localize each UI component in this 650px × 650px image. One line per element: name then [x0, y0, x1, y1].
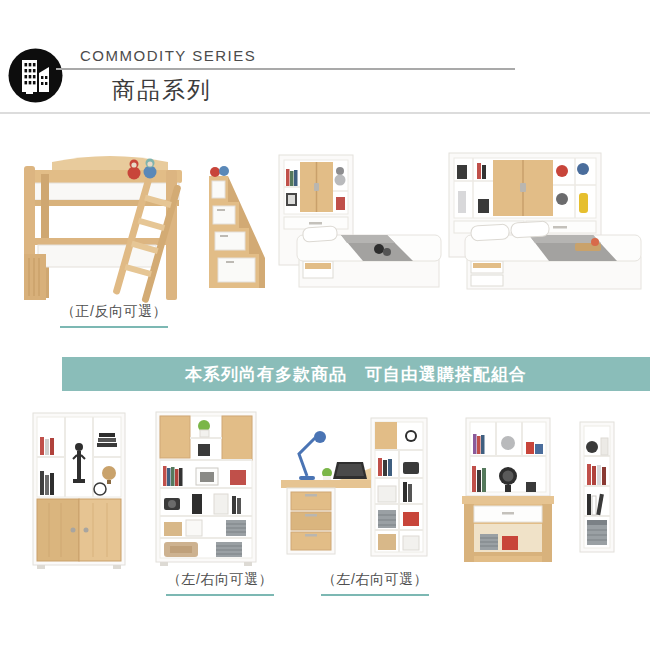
- promo-banner-text: 本系列尚有多款商品 可自由選購搭配組合: [185, 363, 527, 386]
- series-title-zh: 商品系列: [112, 75, 212, 106]
- buildings-icon: [8, 48, 63, 103]
- corner-desk-image: [279, 416, 434, 566]
- narrow-bookcase-image: [577, 420, 617, 558]
- open-bookcase-image: [152, 410, 260, 568]
- promo-banner: 本系列尚有多款商品 可自由選購搭配組合: [62, 357, 650, 391]
- commodity-series-promo-page: COMMODITY SERIES 商品系列: [0, 0, 650, 650]
- note-open-bookcase-orientation: （左/右向可選）: [166, 571, 274, 596]
- note-corner-desk-orientation: （左/右向可選）: [321, 571, 429, 596]
- desk-with-hutch-image: [460, 416, 556, 568]
- loft-bed-image: [18, 146, 203, 306]
- stair-cabinet-image: [206, 162, 268, 292]
- double-bed-image: [445, 151, 645, 303]
- single-bed-image: [275, 153, 445, 303]
- series-title-en: COMMODITY SERIES: [80, 47, 256, 64]
- note-loft-bed-orientation: （正/反向可選）: [60, 303, 168, 328]
- header-separator-line: [0, 112, 650, 114]
- header-rule: [56, 68, 515, 70]
- sliding-door-bookcase-image: [29, 411, 129, 571]
